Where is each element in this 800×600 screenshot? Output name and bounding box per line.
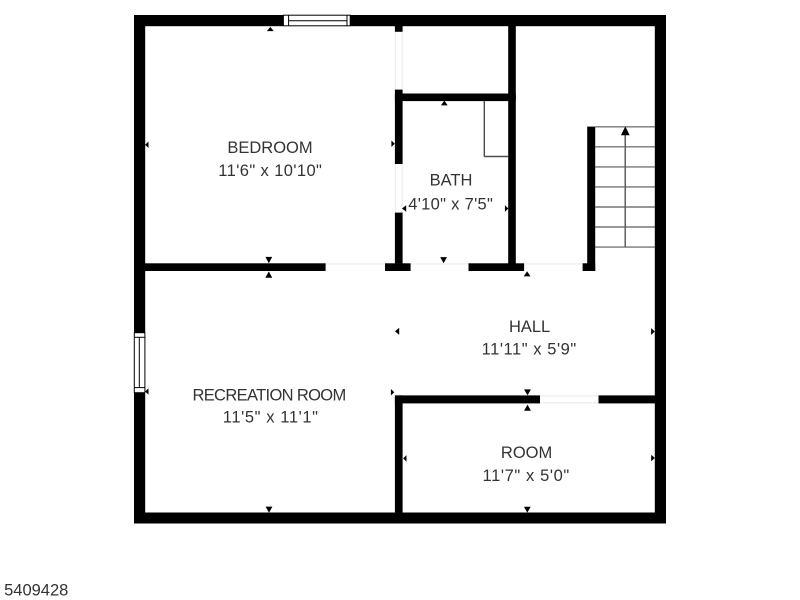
svg-text:BEDROOM: BEDROOM	[227, 139, 312, 157]
svg-text:11'6" x 10'10": 11'6" x 10'10"	[218, 162, 322, 180]
svg-text:HALL: HALL	[509, 318, 550, 336]
svg-text:ROOM: ROOM	[501, 444, 552, 462]
svg-text:4'10" x 7'5": 4'10" x 7'5"	[408, 195, 493, 213]
svg-text:5409428: 5409428	[4, 581, 68, 599]
svg-text:BATH: BATH	[430, 172, 473, 190]
svg-text:11'5" x 11'1": 11'5" x 11'1"	[223, 409, 319, 427]
svg-text:11'11" x 5'9": 11'11" x 5'9"	[482, 341, 577, 359]
svg-text:RECREATION ROOM: RECREATION ROOM	[192, 386, 345, 404]
svg-text:11'7" x 5'0": 11'7" x 5'0"	[483, 467, 570, 485]
